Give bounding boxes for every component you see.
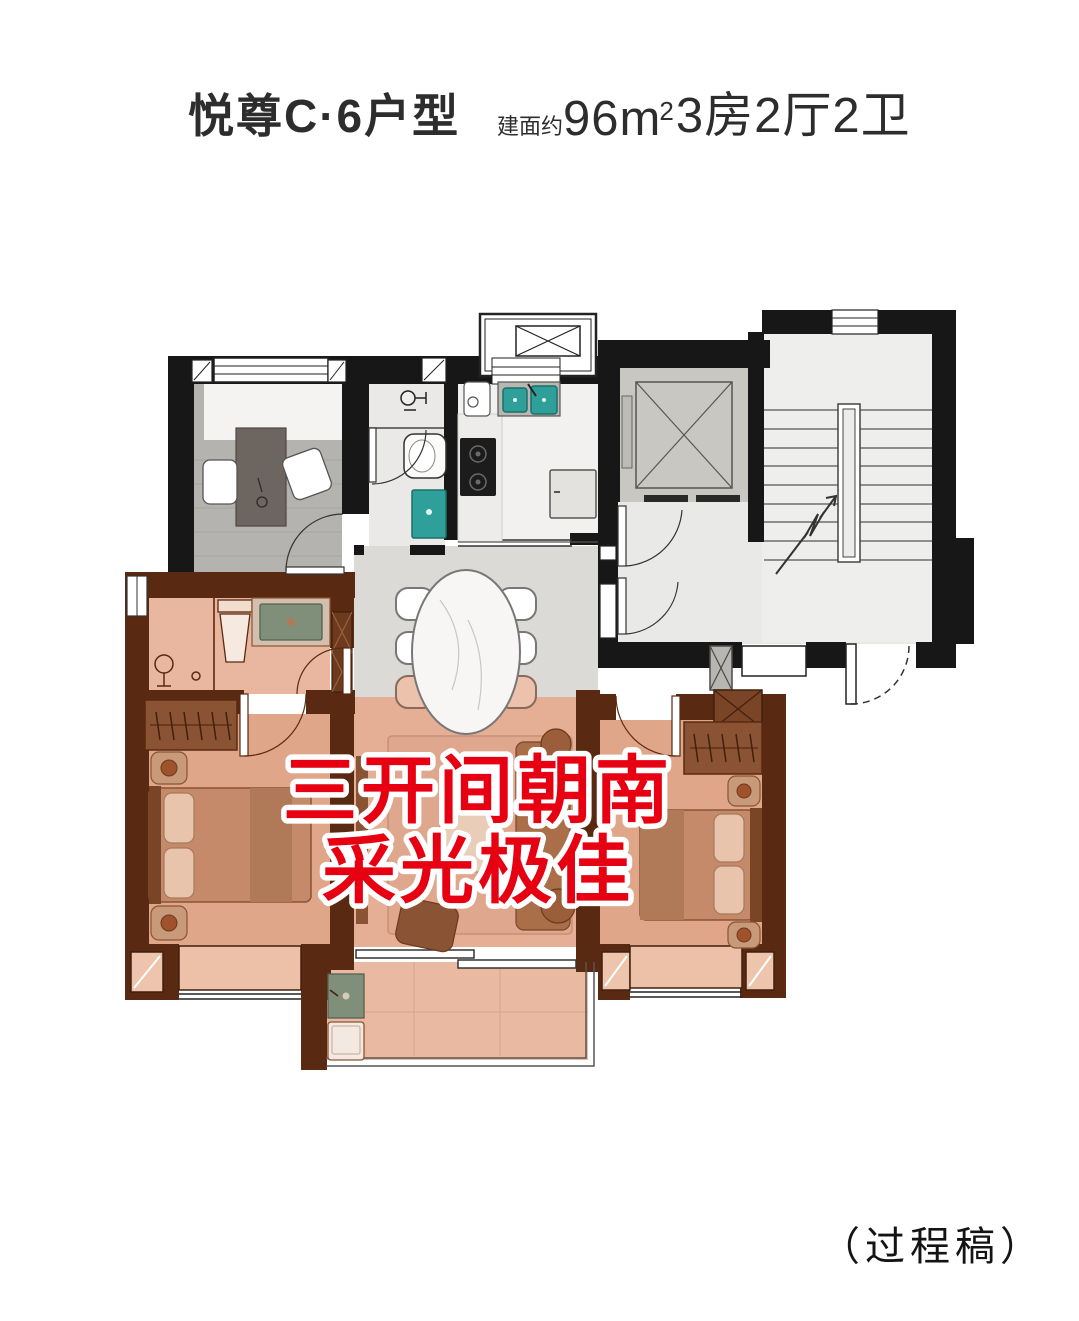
pillow [164, 848, 194, 898]
entry-door-leaf [846, 644, 856, 704]
bed-headboard [750, 808, 762, 922]
niche [600, 584, 616, 638]
niche [742, 646, 806, 676]
dining-table [412, 570, 520, 734]
hall-door-leaf [618, 578, 626, 634]
toilet [220, 614, 250, 662]
chair [203, 460, 237, 504]
fridge [550, 470, 596, 518]
overlay-line2: 采光极佳 [322, 829, 634, 912]
balcony [328, 974, 364, 1060]
stair-window [832, 310, 878, 334]
niche [600, 546, 616, 560]
bedroom1-door-leaf [240, 694, 248, 756]
bedroom1-bay-window [131, 946, 301, 999]
draft-note: （过程稿） [820, 1214, 1045, 1272]
entry-door-swing [851, 646, 909, 704]
study-window [214, 358, 328, 382]
hall-door-leaf [618, 506, 626, 566]
floorplan-page: 悦尊C·6户型 建面约 96 m 2 3房2厅2卫 [0, 0, 1079, 1321]
kitchen-window [492, 358, 560, 384]
pillow [714, 866, 744, 914]
marketing-overlay: 三开间朝南 采光极佳 [283, 749, 673, 912]
floorplan-svg: 三开间朝南 采光极佳 [0, 0, 1079, 1321]
balcony-floor [326, 962, 588, 1060]
study-door-leaf [286, 567, 344, 574]
bath2-door-leaf [369, 428, 376, 482]
bedroom2-bay-window [602, 946, 774, 997]
bed-headboard [149, 786, 161, 904]
pillow [714, 814, 744, 862]
overlay-line1: 三开间朝南 [283, 749, 673, 832]
masterbath-door-leaf [343, 648, 351, 694]
desk [236, 428, 286, 526]
pillow [164, 793, 194, 843]
toilet-tank [218, 600, 252, 612]
bedroom2-door-leaf [672, 696, 680, 756]
